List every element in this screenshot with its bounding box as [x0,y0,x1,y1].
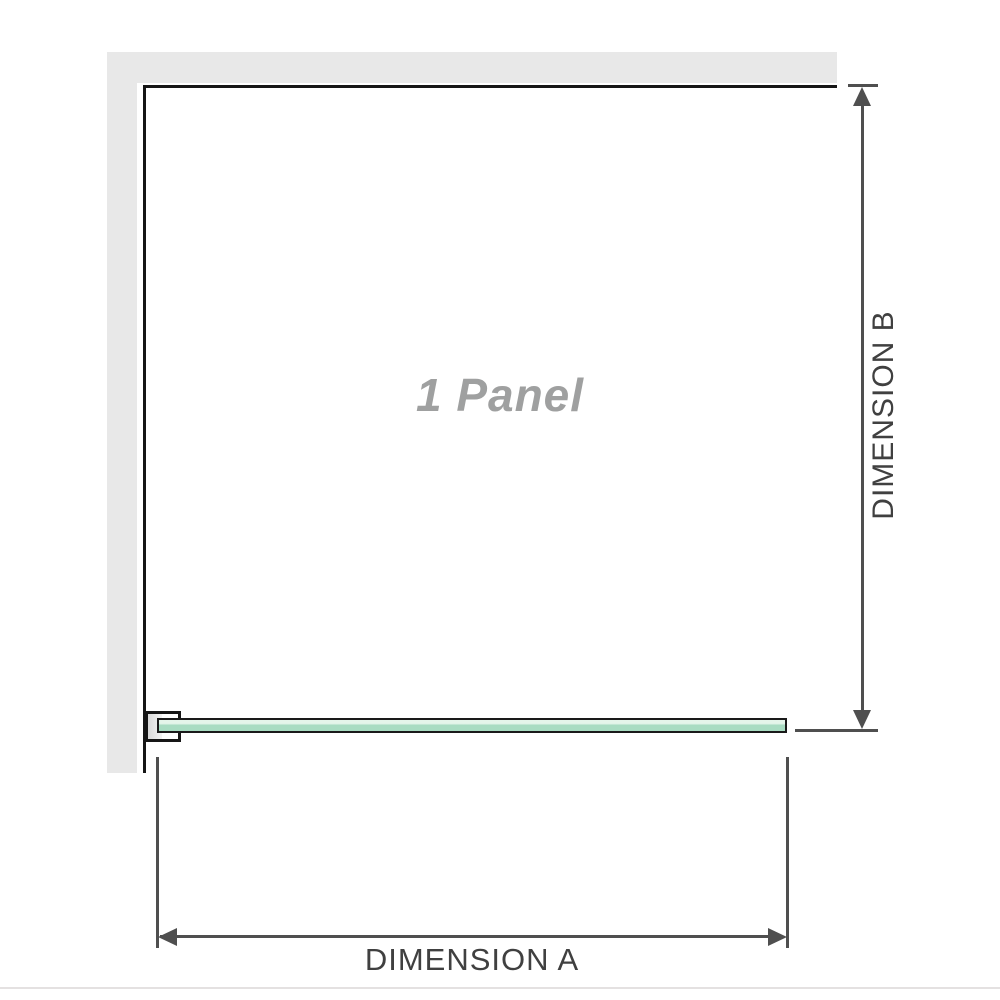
dimension-a-left-extension-line [156,757,159,948]
dimension-a-line [160,935,770,938]
frame-top-line [143,85,837,88]
dimension-a-right-extension-line [786,757,789,948]
panel-count-label: 1 Panel [350,368,650,422]
frame-left-line [143,85,146,773]
dimension-b-label: DIMENSION B [864,285,904,545]
wall-vertical [107,52,137,773]
diagram-canvas: 1 Panel DIMENSION B DIMENSION A [0,0,1000,1000]
dimension-b-bottom-tick [795,729,878,732]
wall-horizontal [107,52,837,83]
glass-panel [157,718,787,733]
bottom-divider [0,987,1000,989]
dimension-b-arrowhead-down-icon [853,710,871,729]
dimension-a-label: DIMENSION A [172,942,772,978]
dimension-b-arrowhead-up-icon [853,87,871,106]
